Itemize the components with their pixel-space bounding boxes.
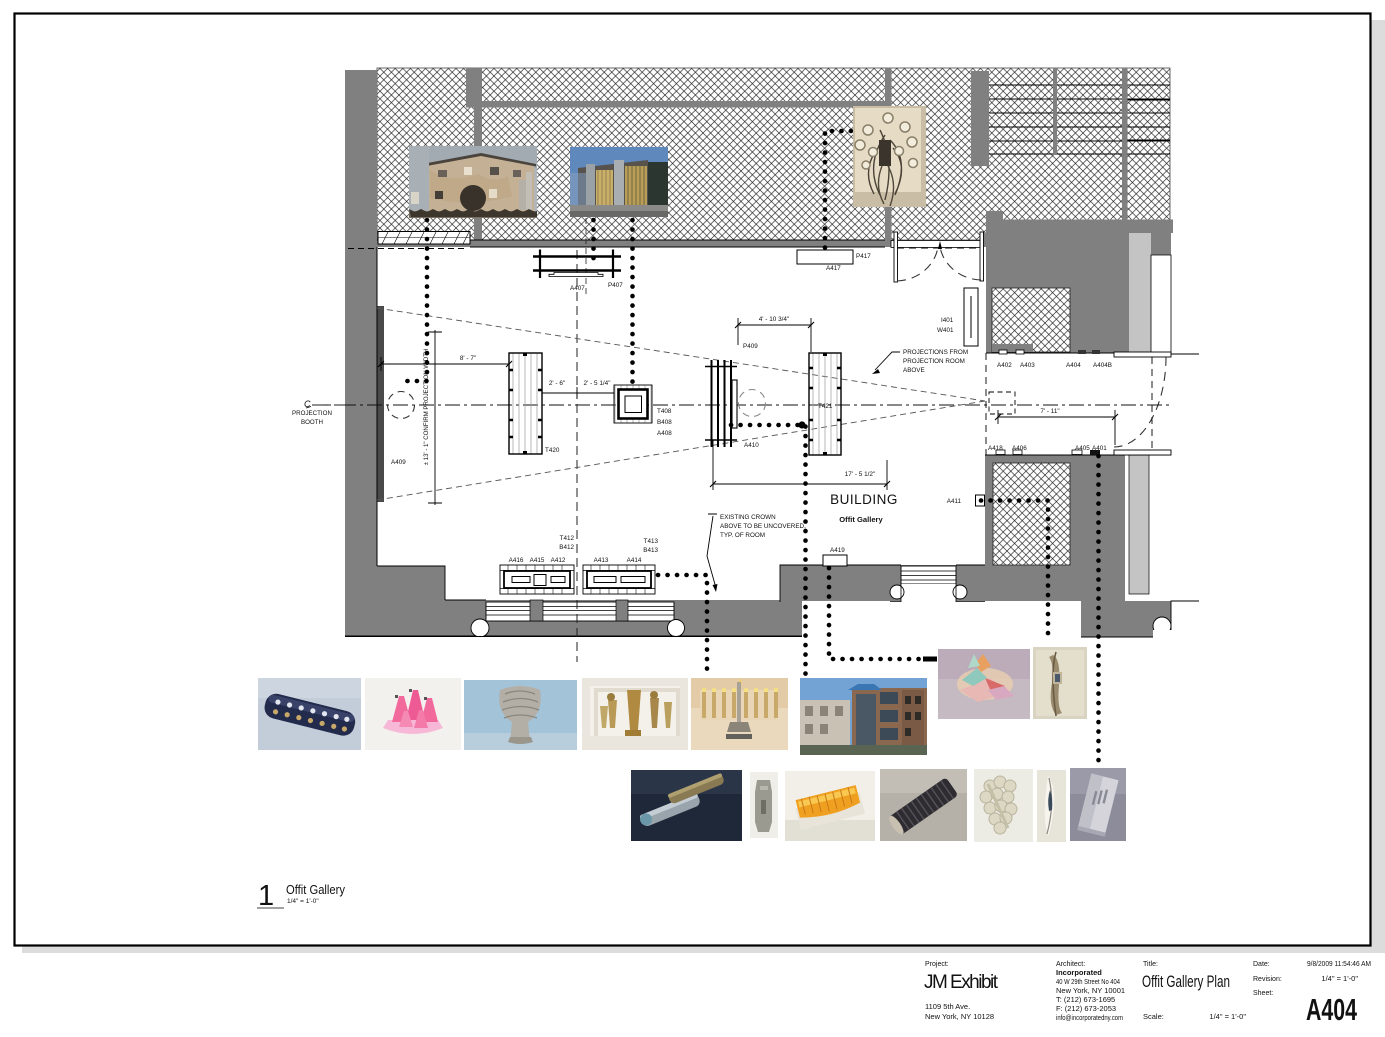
svg-text:A410: A410 — [744, 442, 759, 449]
svg-text:I401: I401 — [941, 317, 954, 324]
svg-text:A404B: A404B — [1093, 362, 1112, 369]
svg-text:A419: A419 — [830, 547, 845, 554]
svg-text:40 W 29th Street No 404: 40 W 29th Street No 404 — [1056, 977, 1120, 986]
svg-text:PROJECTION ROOM: PROJECTION ROOM — [903, 358, 965, 365]
svg-text:Offit Gallery: Offit Gallery — [286, 882, 345, 897]
svg-text:2' - 6": 2' - 6" — [549, 380, 565, 387]
svg-text:A401: A401 — [1092, 445, 1107, 452]
svg-text:A403: A403 — [1020, 362, 1035, 369]
svg-text:T420: T420 — [545, 447, 560, 454]
svg-text:Offit Gallery: Offit Gallery — [839, 515, 883, 524]
svg-text:A402: A402 — [997, 362, 1012, 369]
svg-text:T421: T421 — [818, 403, 833, 410]
svg-text:BOOTH: BOOTH — [301, 419, 323, 426]
svg-text:Date:: Date: — [1253, 961, 1270, 968]
svg-text:ABOVE: ABOVE — [903, 367, 925, 374]
svg-text:± 13' - 1" CONFIRM PROJECTION: ± 13' - 1" CONFIRM PROJECTION WIDTH — [423, 349, 430, 466]
svg-text:B412: B412 — [559, 544, 574, 551]
svg-text:B408: B408 — [657, 419, 672, 426]
svg-text:New York, NY 10001: New York, NY 10001 — [1056, 986, 1125, 995]
svg-text:A405: A405 — [1075, 445, 1090, 452]
svg-text:P409: P409 — [743, 343, 758, 350]
svg-text:Architect:: Architect: — [1056, 961, 1085, 968]
svg-text:F: (212) 673-2053: F: (212) 673-2053 — [1056, 1004, 1116, 1013]
svg-text:A412: A412 — [551, 557, 566, 564]
svg-text:EXISTING CROWN: EXISTING CROWN — [720, 514, 776, 521]
svg-text:A416: A416 — [509, 557, 524, 564]
svg-text:New York, NY 10128: New York, NY 10128 — [925, 1012, 994, 1021]
svg-text:1/4" = 1'-0": 1/4" = 1'-0" — [1209, 1012, 1246, 1021]
svg-text:Sheet:: Sheet: — [1253, 990, 1273, 997]
svg-text:9/8/2009 11:54:46 AM: 9/8/2009 11:54:46 AM — [1307, 959, 1371, 968]
svg-text:PROJECTIONS FROM: PROJECTIONS FROM — [903, 349, 968, 356]
svg-text:1/4" = 1'-0": 1/4" = 1'-0" — [287, 898, 319, 905]
svg-text:A413: A413 — [594, 557, 609, 564]
svg-text:Incorporated: Incorporated — [1056, 968, 1102, 977]
svg-text:A415: A415 — [530, 557, 545, 564]
svg-text:Scale:: Scale: — [1143, 1012, 1164, 1021]
svg-text:ABOVE TO BE UNCOVERED,: ABOVE TO BE UNCOVERED, — [720, 523, 806, 530]
svg-text:BUILDING: BUILDING — [830, 492, 898, 507]
svg-text:A406: A406 — [1012, 445, 1027, 452]
svg-text:Offit Gallery Plan: Offit Gallery Plan — [1142, 972, 1230, 991]
svg-text:T413: T413 — [644, 538, 659, 545]
svg-text:A414: A414 — [627, 557, 642, 564]
svg-text:A417: A417 — [826, 265, 841, 272]
svg-text:A404: A404 — [1306, 992, 1358, 1027]
svg-text:1/4" = 1'-0": 1/4" = 1'-0" — [1321, 974, 1358, 983]
svg-text:T412: T412 — [560, 535, 575, 542]
svg-text:Title:: Title: — [1143, 961, 1158, 968]
svg-text:A411: A411 — [947, 498, 962, 505]
svg-text:A407: A407 — [570, 285, 585, 292]
svg-text:PROJECTION: PROJECTION — [292, 410, 332, 417]
svg-text:Project:: Project: — [925, 961, 949, 968]
svg-text:T408: T408 — [657, 408, 672, 415]
svg-text:8' - 7": 8' - 7" — [460, 355, 476, 362]
svg-text:P407: P407 — [608, 282, 623, 289]
svg-text:Revision:: Revision: — [1253, 976, 1282, 983]
svg-text:A409: A409 — [391, 459, 406, 466]
svg-text:info@incorporatedny.com: info@incorporatedny.com — [1056, 1013, 1123, 1022]
svg-text:A408: A408 — [657, 430, 672, 437]
svg-text:7' - 11": 7' - 11" — [1040, 408, 1059, 415]
svg-text:T: (212) 673-1695: T: (212) 673-1695 — [1056, 995, 1115, 1004]
svg-text:17' - 5 1/2": 17' - 5 1/2" — [845, 471, 876, 478]
svg-text:JM Exhibit: JM Exhibit — [924, 972, 999, 993]
svg-text:1: 1 — [258, 880, 274, 912]
svg-text:TYP. OF ROOM: TYP. OF ROOM — [720, 532, 765, 539]
svg-text:A418: A418 — [988, 445, 1003, 452]
svg-text:W401: W401 — [937, 327, 954, 334]
svg-text:2' - 5 1/4": 2' - 5 1/4" — [584, 380, 611, 387]
svg-text:1109 5th Ave.: 1109 5th Ave. — [925, 1002, 970, 1011]
svg-text:P417: P417 — [856, 253, 871, 260]
svg-text:4' - 10 3/4": 4' - 10 3/4" — [759, 316, 790, 323]
svg-text:A404: A404 — [1066, 362, 1081, 369]
svg-text:B413: B413 — [643, 547, 658, 554]
